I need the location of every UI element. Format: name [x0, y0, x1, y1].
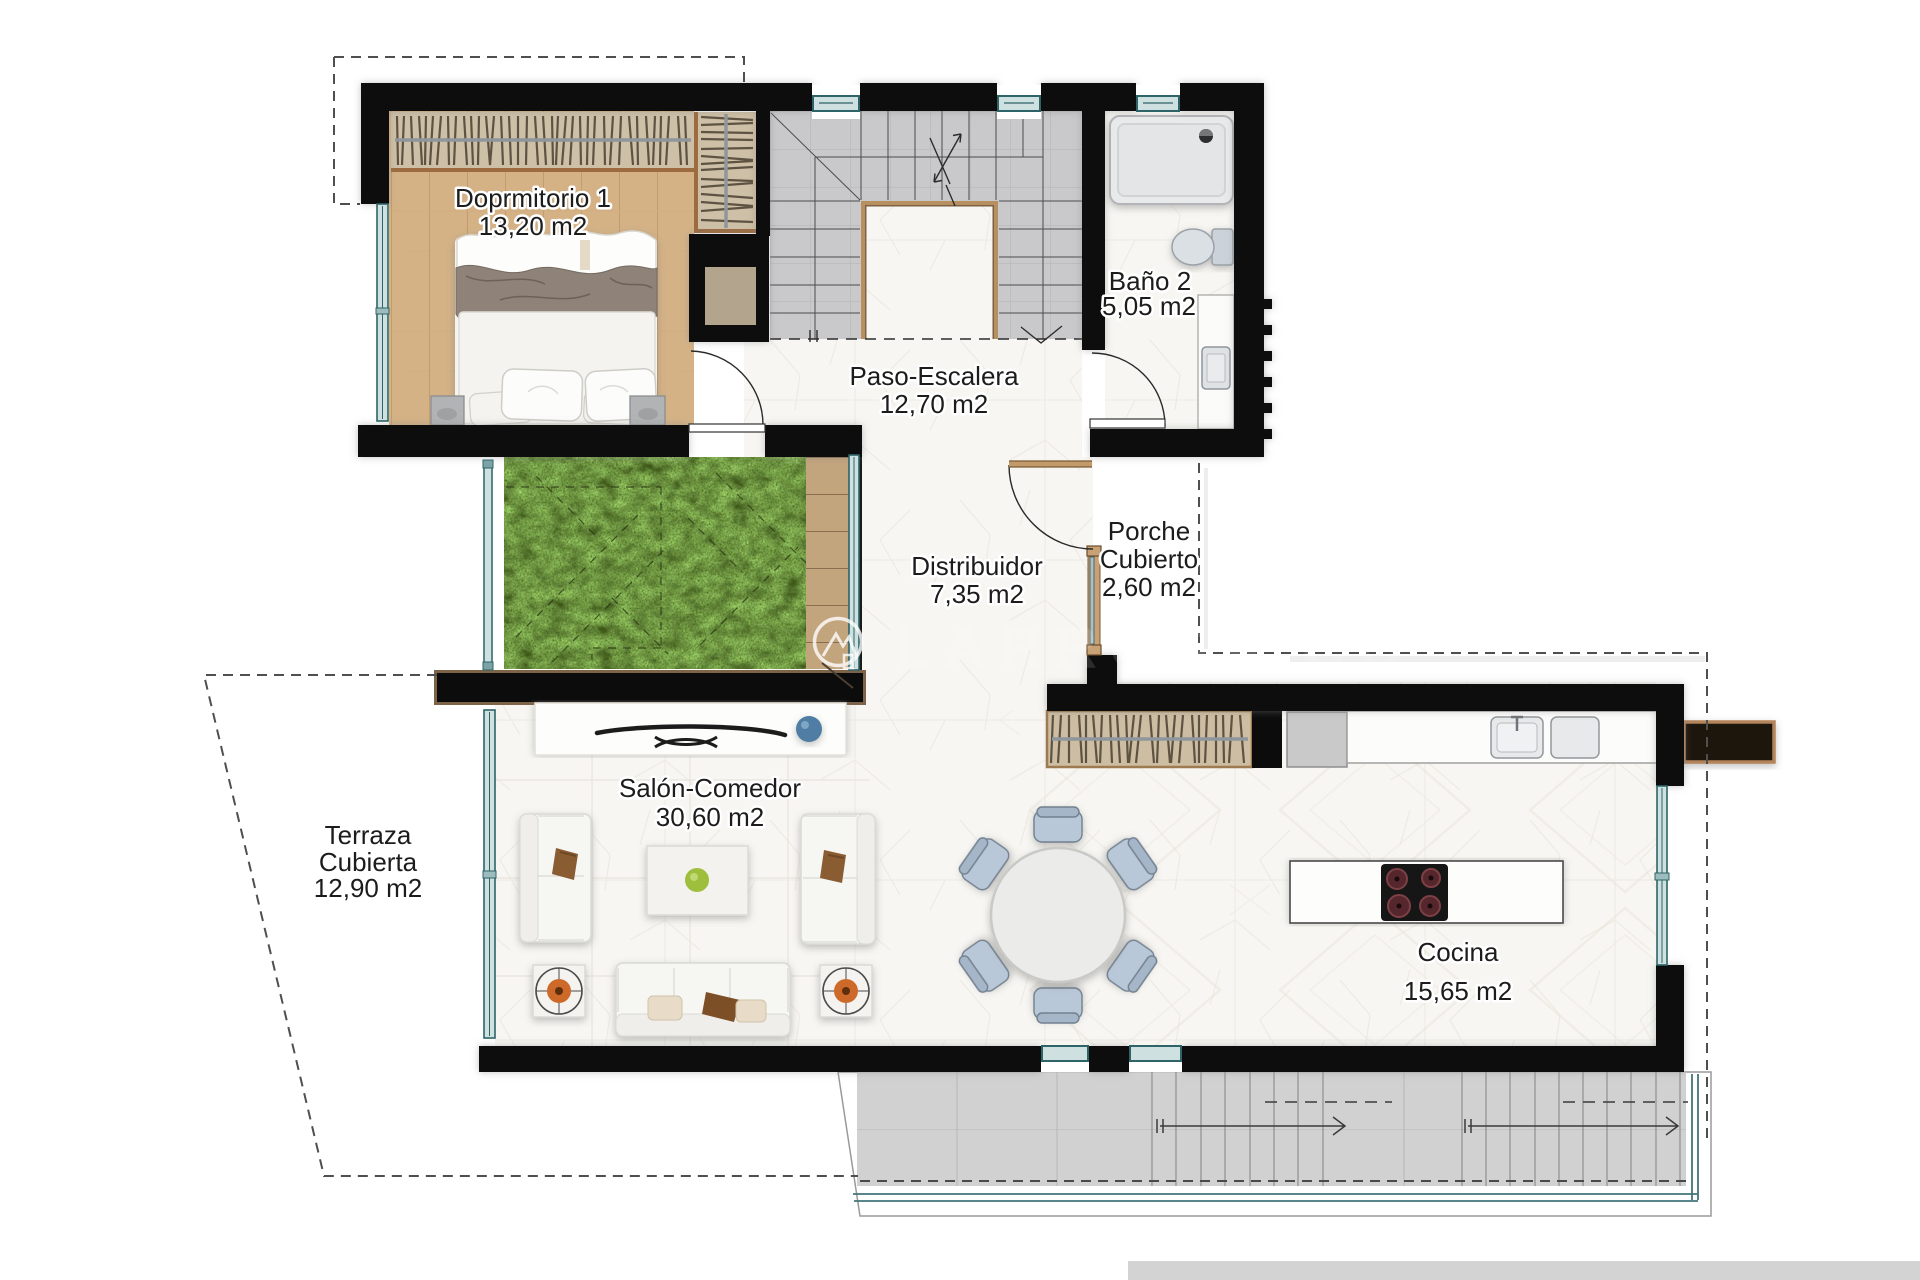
- svg-text:5,05 m2: 5,05 m2: [1102, 291, 1196, 321]
- svg-text:Cocina: Cocina: [1418, 937, 1499, 967]
- svg-text:Salón-Comedor: Salón-Comedor: [619, 773, 801, 803]
- svg-text:Cubierto: Cubierto: [1100, 544, 1198, 574]
- svg-text:2,60 m2: 2,60 m2: [1102, 572, 1196, 602]
- svg-text:Terraza: Terraza: [325, 820, 412, 850]
- svg-text:Porche: Porche: [1108, 516, 1190, 546]
- svg-text:13,20 m2: 13,20 m2: [479, 211, 587, 241]
- svg-text:12,90 m2: 12,90 m2: [314, 873, 422, 903]
- svg-text:Distribuidor: Distribuidor: [911, 551, 1043, 581]
- svg-text:12,70 m2: 12,70 m2: [880, 389, 988, 419]
- svg-text:30,60 m2: 30,60 m2: [656, 802, 764, 832]
- svg-text:LARROSA CO: LARROSA CO: [894, 614, 1415, 681]
- svg-text:Paso-Escalera: Paso-Escalera: [849, 361, 1019, 391]
- svg-text:15,65 m2: 15,65 m2: [1404, 976, 1512, 1006]
- svg-text:7,35 m2: 7,35 m2: [930, 579, 1024, 609]
- svg-text:Doprmitorio 1: Doprmitorio 1: [455, 183, 611, 213]
